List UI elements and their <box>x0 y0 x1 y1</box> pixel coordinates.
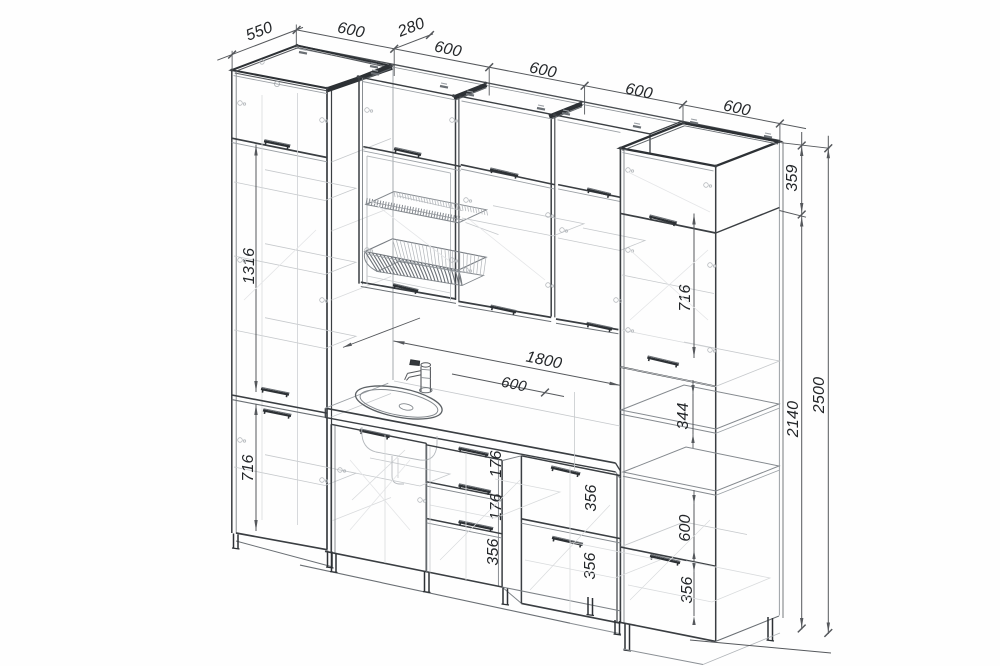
svg-text:1316: 1316 <box>241 248 258 284</box>
svg-text:2140: 2140 <box>785 401 802 438</box>
svg-text:344: 344 <box>675 402 692 429</box>
svg-text:176: 176 <box>488 450 505 477</box>
svg-text:356: 356 <box>583 484 600 511</box>
svg-text:2500: 2500 <box>811 377 828 414</box>
svg-text:356: 356 <box>679 576 696 603</box>
svg-text:716: 716 <box>677 284 694 311</box>
svg-text:716: 716 <box>240 454 257 481</box>
svg-text:356: 356 <box>582 552 599 579</box>
svg-text:359: 359 <box>784 164 801 191</box>
svg-text:356: 356 <box>485 538 502 565</box>
svg-text:600: 600 <box>677 514 694 541</box>
